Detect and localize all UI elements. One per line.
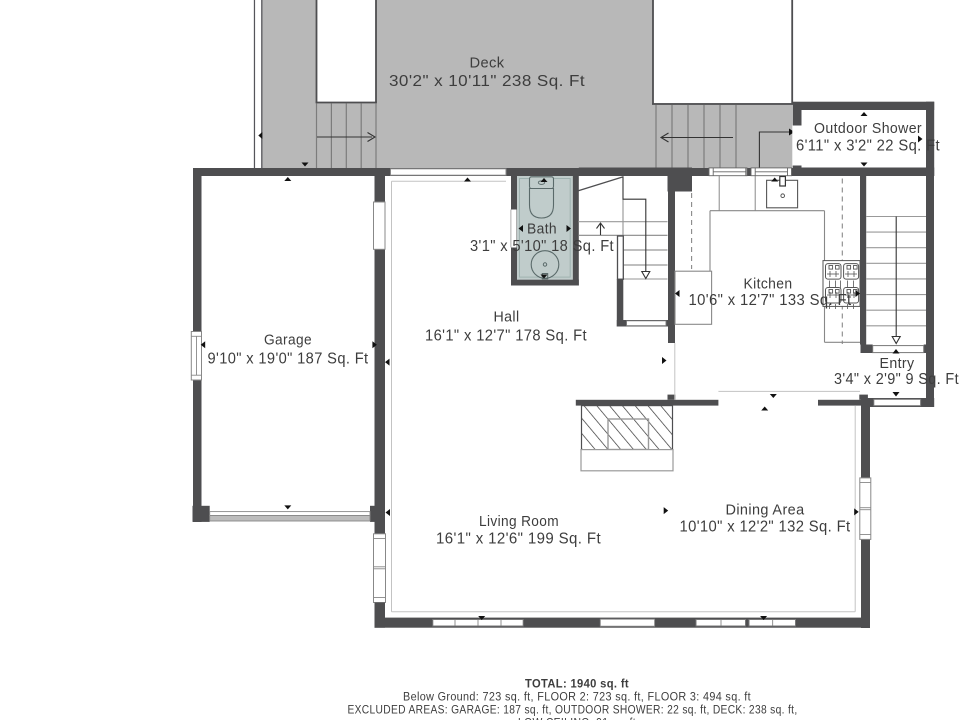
svg-text:3'1" x 5'10" 18 Sq. Ft: 3'1" x 5'10" 18 Sq. Ft xyxy=(470,238,614,255)
svg-text:16'1" x 12'6" 199 Sq. Ft: 16'1" x 12'6" 199 Sq. Ft xyxy=(436,531,601,548)
svg-text:Deck: Deck xyxy=(470,55,505,72)
svg-text:10'6" x 12'7" 133 Sq. Ft: 10'6" x 12'7" 133 Sq. Ft xyxy=(689,292,852,309)
svg-text:16'1" x 12'7" 178 Sq. Ft: 16'1" x 12'7" 178 Sq. Ft xyxy=(425,328,587,345)
svg-text:10'10" x 12'2" 132 Sq. Ft: 10'10" x 12'2" 132 Sq. Ft xyxy=(680,519,851,536)
svg-text:TOTAL: 1940 sq. ft: TOTAL: 1940 sq. ft xyxy=(525,677,629,691)
svg-text:Garage: Garage xyxy=(264,332,312,349)
svg-text:9'10" x 19'0" 187 Sq. Ft: 9'10" x 19'0" 187 Sq. Ft xyxy=(208,351,369,368)
svg-text:LOW CEILING: 91 sq. ft: LOW CEILING: 91 sq. ft xyxy=(518,716,636,720)
svg-text:Bath: Bath xyxy=(527,221,557,238)
svg-text:EXCLUDED AREAS: GARAGE: 187 sq: EXCLUDED AREAS: GARAGE: 187 sq. ft, OUTD… xyxy=(348,703,798,717)
svg-text:3'4" x 2'9" 9 Sq. Ft: 3'4" x 2'9" 9 Sq. Ft xyxy=(834,371,959,388)
svg-text:Dining Area: Dining Area xyxy=(726,501,805,518)
svg-text:Hall: Hall xyxy=(494,309,520,326)
svg-text:30'2" x 10'11" 238 Sq. Ft: 30'2" x 10'11" 238 Sq. Ft xyxy=(389,73,585,90)
svg-text:Living Room: Living Room xyxy=(479,513,559,530)
svg-text:Kitchen: Kitchen xyxy=(744,276,793,293)
svg-text:Outdoor Shower: Outdoor Shower xyxy=(814,120,922,137)
svg-text:Below Ground: 723 sq. ft, FLOO: Below Ground: 723 sq. ft, FLOOR 2: 723 s… xyxy=(403,690,751,704)
svg-text:Entry: Entry xyxy=(880,355,915,372)
